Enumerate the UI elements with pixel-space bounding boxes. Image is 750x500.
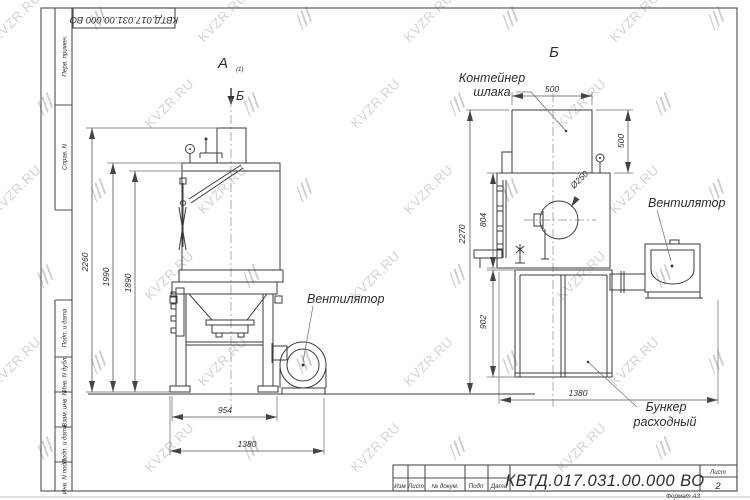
format-label: Формат А3 [666,493,700,500]
hopper-callout-line1: Бункер [646,400,687,414]
dim-804: 804 [478,213,488,227]
title-col-podp: Подп [469,483,484,490]
dim-954: 954 [218,405,232,415]
fan-leader-left [303,306,313,362]
view-left: А (1) Б [80,55,535,455]
title-sheet-label: Лист [709,469,726,476]
title-doc-number: КВТД.017.031.00.000 ВО [505,472,704,490]
section-marker-label: Б [236,89,244,103]
view-left-label: А [217,55,228,72]
dim-port-diameter: Ø250 [568,168,591,191]
title-col-n-dokum: № докум. [431,483,458,490]
dim-500-top: 500 [545,84,559,94]
dim-2260: 2260 [80,252,90,272]
frame-label-perv-primen: Перв. примен. [62,35,69,76]
hopper-front [515,270,612,377]
drawing-canvas: Перв. примен. Справ. N Подп. и дата Инв.… [0,0,750,500]
left-view-dimensions: 2260 1990 1890 954 1380 [80,128,324,455]
machine-body-front [474,173,610,268]
hopper-callout-line2: расходный [633,415,697,429]
dim-1990: 1990 [101,267,111,286]
frame-label-podp-i-data-1: Подп. и дата [62,308,69,347]
frame-label-vzam-inv-n: Взам. инв. N [62,390,69,427]
dim-1890: 1890 [123,273,133,292]
support-frame-side [170,282,282,392]
title-col-izm: Изм [394,483,406,490]
dim-1380-right: 1380 [569,388,588,398]
dim-2270: 2270 [457,224,467,244]
frame-label-sprav-n: Справ. N [62,144,69,170]
view-left-label-scale: (1) [236,66,244,73]
dim-902: 902 [478,315,488,329]
view-right: Б [457,44,725,429]
dim-500-right: 500 [616,134,626,148]
frame-label-inv-n-podl: Инв. N подл. [62,458,69,494]
fan-front [610,240,703,298]
slag-container-callout-line2: шлака [473,85,510,99]
drawing-sheet: KVZR.RUKVZR.RUKVZR.RUKVZR.RUKVZR.RUKVZR.… [0,0,750,500]
fan-callout-right: Вентилятор [648,196,725,210]
fan-side [272,342,326,394]
view-right-label: Б [549,44,559,61]
frame-label-inv-n-dubl: Инв. N дубл. [62,356,69,392]
title-block: Изм Лист № докум. Подп Дата КВТД.017.031… [393,465,737,500]
title-sheet-number: 2 [714,481,721,492]
doc-number-top: КВТД.017.031.00.000 ВО [69,14,178,25]
title-col-list: Лист [407,483,424,490]
slag-container-callout-line1: Контейнер [459,71,525,85]
frame-label-podp-i-data-2: Подп. и дата [62,424,69,463]
dim-1380-left: 1380 [238,439,257,449]
fan-callout-left: Вентилятор [307,292,384,306]
